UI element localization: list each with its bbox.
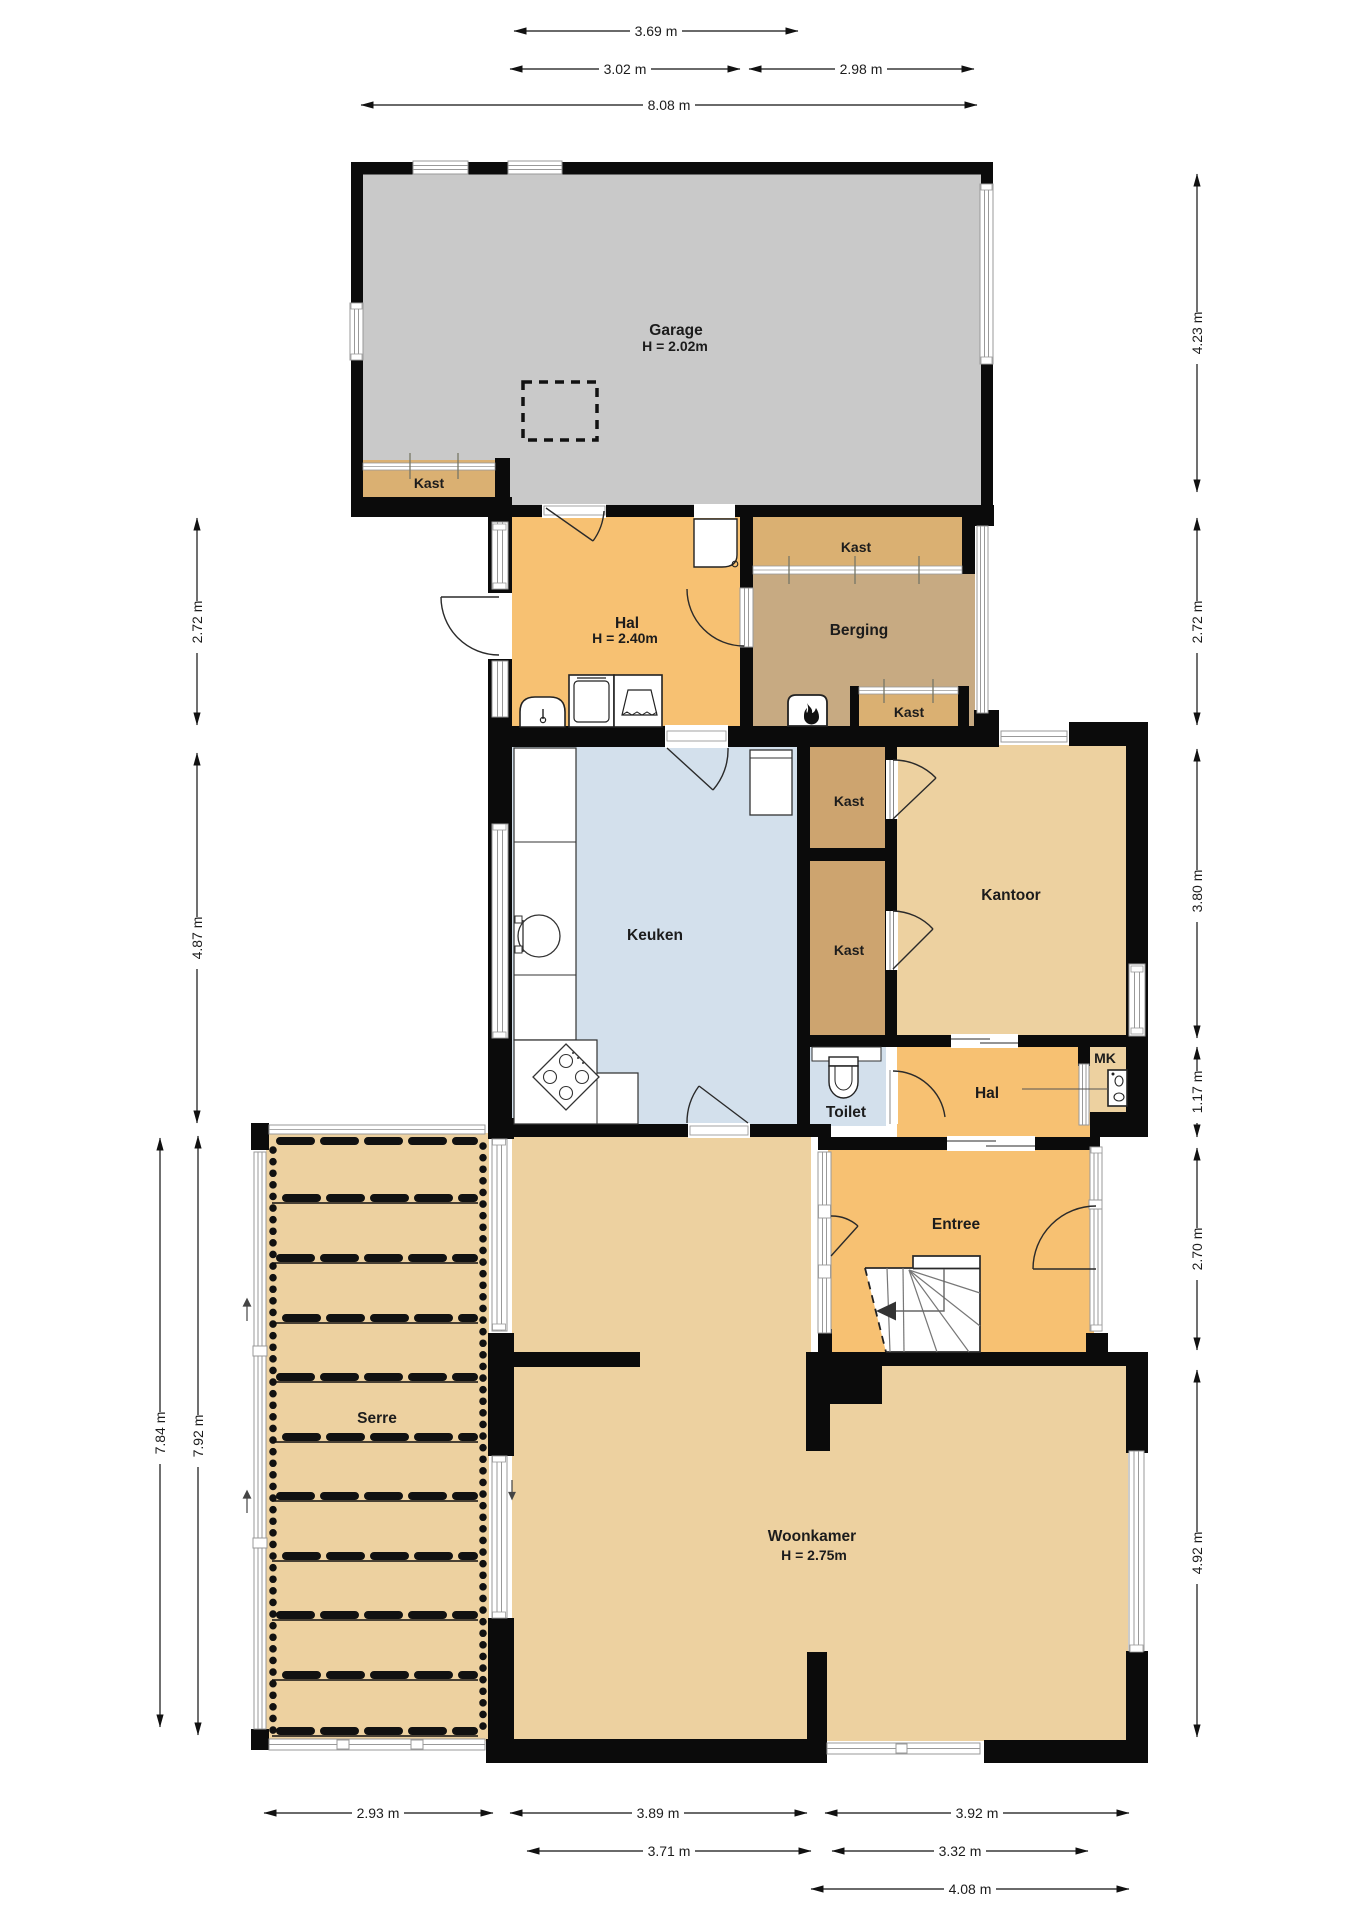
svg-text:2.98 m: 2.98 m <box>840 61 883 77</box>
svg-text:3.89 m: 3.89 m <box>637 1805 680 1821</box>
svg-text:Kast: Kast <box>894 704 925 720</box>
svg-text:Kantoor: Kantoor <box>981 887 1040 904</box>
svg-text:4.87 m: 4.87 m <box>189 917 205 960</box>
svg-text:4.92 m: 4.92 m <box>1189 1532 1205 1575</box>
svg-text:Kast: Kast <box>834 942 865 958</box>
svg-text:H = 2.40m: H = 2.40m <box>592 630 658 646</box>
svg-text:3.69 m: 3.69 m <box>635 23 678 39</box>
svg-text:Garage: Garage <box>649 322 703 339</box>
svg-text:Berging: Berging <box>830 622 889 639</box>
svg-text:MK: MK <box>1094 1050 1116 1066</box>
svg-text:Woonkamer: Woonkamer <box>768 1528 856 1545</box>
svg-text:2.72 m: 2.72 m <box>189 601 205 644</box>
svg-text:Keuken: Keuken <box>627 927 683 944</box>
svg-text:8.08 m: 8.08 m <box>648 97 691 113</box>
svg-text:3.71 m: 3.71 m <box>648 1843 691 1859</box>
svg-text:3.92 m: 3.92 m <box>956 1805 999 1821</box>
svg-text:Hal: Hal <box>975 1085 999 1102</box>
svg-text:2.93 m: 2.93 m <box>357 1805 400 1821</box>
svg-text:2.72 m: 2.72 m <box>1189 601 1205 644</box>
svg-text:7.84 m: 7.84 m <box>152 1412 168 1455</box>
svg-text:Kast: Kast <box>414 475 445 491</box>
svg-text:3.32 m: 3.32 m <box>939 1843 982 1859</box>
svg-text:Serre: Serre <box>357 1410 397 1427</box>
svg-text:3.80 m: 3.80 m <box>1189 870 1205 913</box>
svg-text:Entree: Entree <box>932 1216 981 1233</box>
svg-text:H = 2.75m: H = 2.75m <box>781 1547 847 1563</box>
svg-text:4.08 m: 4.08 m <box>949 1881 992 1897</box>
svg-text:3.02 m: 3.02 m <box>604 61 647 77</box>
svg-text:2.70 m: 2.70 m <box>1189 1228 1205 1271</box>
svg-text:Kast: Kast <box>841 539 872 555</box>
svg-text:1.17 m: 1.17 m <box>1189 1071 1205 1114</box>
svg-text:7.92 m: 7.92 m <box>190 1415 206 1458</box>
svg-text:Kast: Kast <box>834 793 865 809</box>
svg-text:4.23 m: 4.23 m <box>1189 312 1205 355</box>
svg-text:H = 2.02m: H = 2.02m <box>642 338 708 354</box>
svg-text:Toilet: Toilet <box>826 1104 866 1121</box>
